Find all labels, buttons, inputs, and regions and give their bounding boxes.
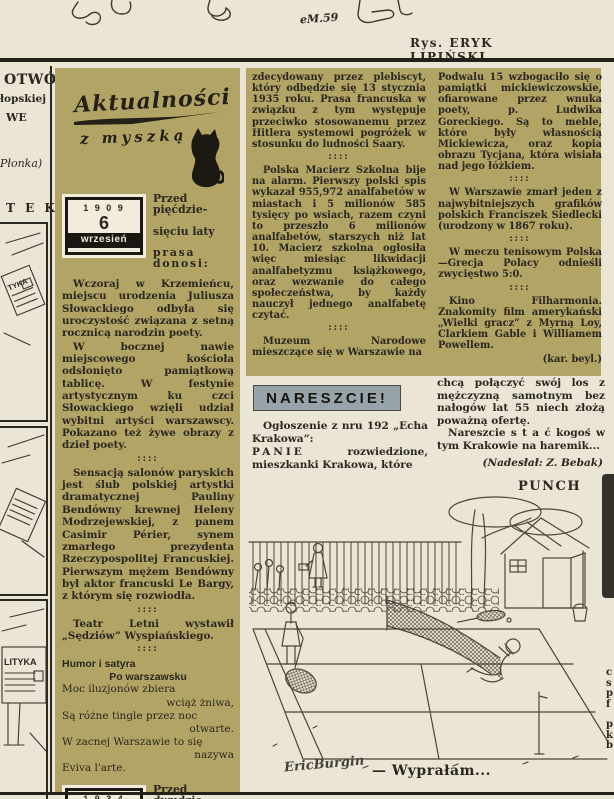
- poem-line: Eviva l'arte.: [62, 762, 234, 775]
- paragraph-separator: ::::: [62, 645, 234, 654]
- paragraph-separator: ::::: [252, 324, 426, 333]
- nareszcie-headline-box: NARESZCIE!: [253, 385, 401, 411]
- calendar-month: wrzesień: [68, 233, 140, 248]
- nareszcie-headline: NARESZCIE!: [266, 390, 388, 407]
- left-edge-fragment: Płonka): [0, 157, 42, 170]
- poem-line: wciąż żniwa,: [62, 697, 234, 710]
- article-paragraph: Teatr Letni wystawił „Sędziów” Wyspiańsk…: [62, 618, 234, 643]
- article-paragraph: Sensacją salonów paryskich jest ślub pol…: [62, 467, 234, 603]
- calendar-day: 6: [68, 214, 140, 232]
- left-edge-fragment: łopskiej: [0, 93, 46, 105]
- column-right: Podwalu 15 wzbogaciło się o pamiątki mic…: [438, 72, 602, 365]
- paragraph-separator: ::::: [62, 455, 234, 464]
- poem-line: otwarte.: [62, 723, 234, 736]
- poem-title: Po warszawsku: [62, 671, 234, 684]
- heading-line: sięciu laty: [153, 227, 234, 238]
- article-paragraph: Nareszcie s t a ć kogoś w tym Krakowie n…: [437, 427, 605, 452]
- nareszcie-continuation: chcą połączyć swój los z mężczyzną samot…: [437, 377, 605, 469]
- poem-line: nazywa: [62, 749, 234, 762]
- column-byline: (kar. beyl.): [438, 354, 602, 365]
- article-paragraph: Podwalu 15 wzbogaciło się o pamiątki mic…: [438, 72, 602, 172]
- heading-line: Przed pięćdzie-: [153, 194, 234, 216]
- logo-subtitle: z myszką: [80, 126, 188, 148]
- left-edge-panel-newspaper-text: LITYKA: [4, 657, 37, 667]
- nareszcie-ad-paragraph: PANIE rozwiedzione, mieszkanki Krakowa, …: [252, 446, 428, 471]
- article-paragraph: Polska Macierz Szkolna bije na alarm. Pi…: [252, 165, 426, 321]
- left-edge-comic-panels: LITYKA TYKA: [0, 185, 52, 799]
- paragraph-separator: ::::: [438, 235, 602, 244]
- strip-artist-signature: eM.59: [300, 11, 339, 27]
- cat-silhouette-icon: [178, 126, 224, 190]
- date-row-1909: 1 9 0 9 6 wrzesień Przed pięćdzie- sięci…: [62, 194, 234, 270]
- article-paragraph: chcą połączyć swój los z mężczyzną samot…: [437, 377, 605, 427]
- poem-line: W zacnej Warszawie to się: [62, 736, 234, 749]
- article-paragraph: zdecydowany przez plebiscyt, który odbęd…: [252, 72, 426, 150]
- paragraph-separator: ::::: [438, 175, 602, 184]
- column-left: 1 9 0 9 6 wrzesień Przed pięćdzie- sięci…: [62, 194, 234, 799]
- article-paragraph: W bocznej nawie miejscowego kościoła ods…: [62, 341, 234, 452]
- article-paragraph: Ogłoszenie z nru 192 „Echa Krakowa”:: [252, 420, 428, 445]
- calendar-box-1909: 1 9 0 9 6 wrzesień: [65, 197, 143, 255]
- heading-line: prasa donosi:: [153, 248, 234, 270]
- poem-line: Moc iluzjonów zbiera: [62, 683, 234, 696]
- section-heading-1909: Przed pięćdzie- sięciu laty prasa donosi…: [153, 194, 234, 270]
- paragraph-separator: ::::: [438, 284, 602, 293]
- left-edge-fragment: WE: [6, 111, 27, 124]
- paragraph-separator: ::::: [252, 153, 426, 162]
- submitter-credit: (Nadesłał: Z. Bebak): [437, 457, 605, 470]
- bottom-rule: [0, 792, 614, 795]
- cartoon-caption: — Wyprałam...: [372, 763, 491, 779]
- article-paragraph: Muzeum Narodowe mieszczące się w Warszaw…: [252, 336, 426, 358]
- poem-line: Są różne tingle przez noc: [62, 710, 234, 723]
- column-middle: zdecydowany przez plebiscyt, który odbęd…: [252, 72, 426, 360]
- article-paragraph: Kino Filharmonia. Znakomity film ameryka…: [438, 296, 602, 352]
- right-edge-fragment: c s p f: [606, 668, 613, 710]
- top-rule: [0, 58, 614, 62]
- newspaper-page: eM.59 Rys. ERYK LIPIŃSKI OTWÓR łopskiej …: [0, 0, 614, 799]
- article-paragraph: W Warszawie zmarł jeden z najwybitniejsz…: [438, 187, 602, 232]
- calendar-year: 1 9 3 4: [68, 794, 140, 799]
- nareszcie-intro: Ogłoszenie z nru 192 „Echa Krakowa”:: [252, 420, 428, 445]
- right-edge-dark-frame: [602, 474, 614, 598]
- tennis-cartoon-illustration: [243, 496, 608, 790]
- cartoon-source-label: PUNCH: [518, 479, 581, 494]
- column-rule: [50, 66, 52, 795]
- right-edge-fragment: p k b: [606, 720, 613, 752]
- paragraph-separator: ::::: [62, 606, 234, 615]
- humor-section-heading: Humor i satyra: [62, 658, 234, 671]
- article-paragraph: W meczu tenisowym Polska—Grecja Polacy o…: [438, 247, 602, 280]
- ad-lead-word: PANIE: [252, 446, 305, 458]
- article-paragraph: Wczoraj w Krzemieńcu, miejscu urodzenia …: [62, 278, 234, 340]
